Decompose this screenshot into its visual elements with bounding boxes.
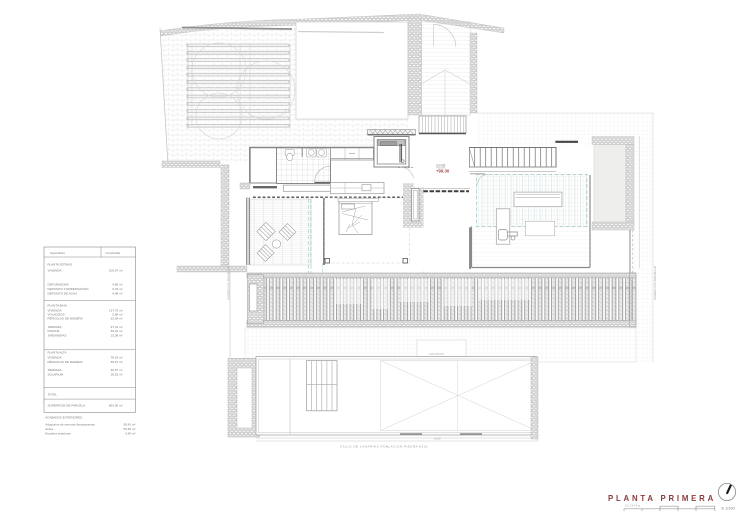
svg-text:9,48 m²: 9,48 m²: [112, 291, 122, 295]
svg-text:DEPOSITO DE AGUA: DEPOSITO DE AGUA: [48, 291, 78, 295]
svg-text:4,80 m²: 4,80 m²: [112, 282, 122, 286]
svg-text:Acera: Acera: [45, 427, 53, 431]
svg-text:CALLE DE CANARIAS POBLACION P: CALLE DE CANARIAS POBLACION PIEDRA AZUL: [340, 445, 429, 449]
svg-text:SUPERFICIE DE PARCELA: SUPERFICIE DE PARCELA: [48, 404, 86, 408]
svg-text:VIVIENDA: VIVIENDA: [48, 269, 62, 273]
svg-text:TOTAL: TOTAL: [48, 393, 58, 397]
svg-text:JACUZZI EXT.: JACUZZI EXT.: [429, 353, 445, 356]
svg-text:PLANTA PRIMERA: PLANTA PRIMERA: [608, 493, 716, 503]
svg-text:15,38 m²: 15,38 m²: [111, 333, 123, 337]
svg-text:9,90 m²: 9,90 m²: [125, 431, 135, 435]
svg-text:PLANTA BAJA: PLANTA BAJA: [48, 303, 68, 307]
svg-text:E 1/100: E 1/100: [722, 507, 735, 511]
svg-text:6,34 m²: 6,34 m²: [112, 287, 122, 291]
svg-text:Escalera exteriores: Escalera exteriores: [45, 431, 71, 435]
svg-text:LINDERO CON PARCELA 23: LINDERO CON PARCELA 23: [227, 265, 231, 300]
svg-text:PÉRGOLAS DE MADERA: PÉRGOLAS DE MADERA: [48, 316, 83, 321]
svg-text:LINDERO CON PARCELA 25: LINDERO CON PARCELA 25: [653, 265, 657, 300]
svg-text:PLANTA ALTA: PLANTA ALTA: [48, 351, 67, 355]
svg-text:105,97 m²: 105,97 m²: [109, 269, 123, 273]
svg-text:Construida: Construida: [106, 251, 121, 255]
svg-text:+99.30: +99.30: [436, 168, 450, 173]
svg-text:JARDINERAS: JARDINERAS: [48, 333, 67, 337]
svg-text:SOLARIUM: SOLARIUM: [48, 372, 64, 376]
svg-text:PÉRGOLAS DE MADERA: PÉRGOLAS DE MADERA: [48, 359, 83, 364]
svg-text:Superficies: Superficies: [50, 251, 65, 255]
svg-text:DEPOSITO COMPENSACIÓN: DEPOSITO COMPENSACIÓN: [48, 286, 89, 291]
svg-text:62,94 m²: 62,94 m²: [111, 317, 123, 321]
svg-text:PLANTA SÓTANO: PLANTA SÓTANO: [48, 262, 73, 267]
svg-text:803,00 m²: 803,00 m²: [109, 404, 123, 408]
svg-text:56,45 m²: 56,45 m²: [124, 427, 136, 431]
svg-text:28,02 m²: 28,02 m²: [111, 372, 123, 376]
svg-text:0 1 2 3 4 5 m: 0 1 2 3 4 5 m: [625, 504, 640, 508]
svg-text:59,67 m²: 59,67 m²: [111, 360, 123, 364]
svg-text:DEPURADORA: DEPURADORA: [48, 282, 69, 286]
svg-text:ACABADOS EXTERIORES: ACABADOS EXTERIORES: [45, 416, 82, 420]
svg-text:15.60: 15.60: [434, 437, 441, 441]
